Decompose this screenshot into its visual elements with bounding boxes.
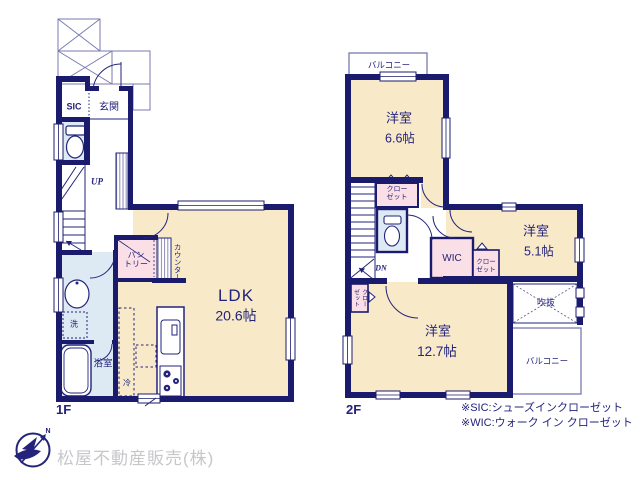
note-sic: ※SIC:シューズインクローゼット <box>461 399 623 415</box>
washbasin-fixture <box>65 280 89 308</box>
toilet-2f-fixture <box>384 216 401 246</box>
label-room2-size: 5.1帖 <box>524 245 554 260</box>
label-pantry: パン トリー <box>124 251 148 270</box>
label-room1-size: 6.6帖 <box>385 132 415 147</box>
entrance-porch <box>58 19 150 110</box>
floor2-label: 2F <box>346 402 361 417</box>
hall-cabinet <box>116 153 128 209</box>
label-closet3: クロー ゼット <box>351 289 367 307</box>
bathtub-fixture <box>61 345 91 396</box>
label-room3-size: 12.7帖 <box>417 344 457 360</box>
company-name: 松屋不動産販売(株) <box>57 444 214 469</box>
label-laundry: 洗 <box>70 319 78 328</box>
floor1-label: 1F <box>56 402 71 417</box>
label-balcony-top: バルコニー <box>368 60 410 70</box>
label-closet2: クロー ゼット <box>476 258 496 273</box>
label-room1-name: 洋室 <box>386 110 412 125</box>
label-fridge: 冷 <box>123 378 131 387</box>
label-room3-name: 洋室 <box>425 323 451 338</box>
room-6-6 <box>348 78 446 180</box>
label-wic: WIC <box>442 253 461 265</box>
note-wic: ※WIC:ウォーク イン クローゼット <box>461 414 633 430</box>
label-ldk-name: LDK <box>218 286 254 306</box>
counter-strip <box>157 238 171 280</box>
label-room2-name: 洋室 <box>523 223 549 238</box>
kitchen-unit <box>157 307 184 397</box>
logo-bird-icon <box>14 449 41 459</box>
label-counter: カウンター <box>172 243 182 281</box>
floorplan-page: SIC 玄関 UP カウンター パン トリー LDK 20.6帖 洗 浴室 冷 … <box>0 0 640 480</box>
label-sic: SIC <box>66 102 81 113</box>
label-balcony-right: バルコニー <box>526 356 568 366</box>
label-up: UP <box>91 177 103 188</box>
label-dn: DN <box>375 263 387 272</box>
toilet-1f-fixture <box>66 126 85 158</box>
floor1-plan <box>54 19 295 406</box>
label-closet1: クロー ゼット <box>387 186 408 203</box>
label-genkan: 玄関 <box>99 102 119 114</box>
logo-north-label: N <box>45 428 50 436</box>
label-ldk-size: 20.6帖 <box>215 308 256 325</box>
company-logo <box>14 434 50 467</box>
label-bath: 浴室 <box>93 358 112 369</box>
label-void: 吹抜 <box>537 298 555 309</box>
kitchen-faucet <box>172 325 177 335</box>
